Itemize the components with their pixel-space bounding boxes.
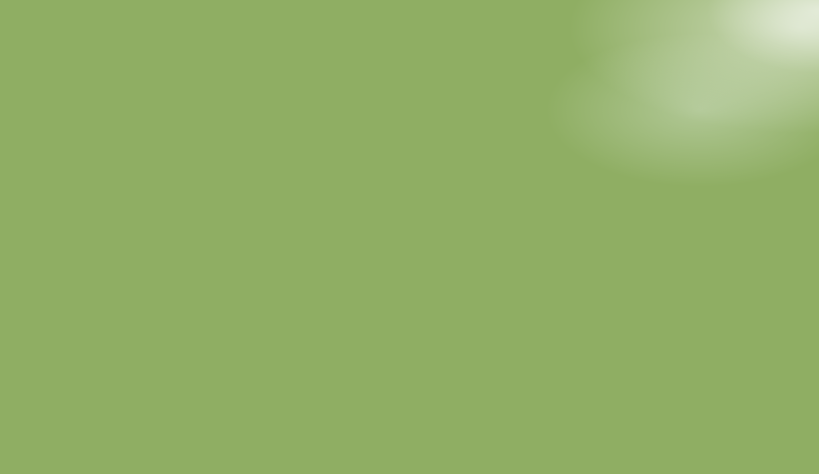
industrial-park-aerial-render (0, 0, 819, 474)
render-canvas (0, 0, 819, 474)
atmospheric-haze (470, 0, 819, 220)
